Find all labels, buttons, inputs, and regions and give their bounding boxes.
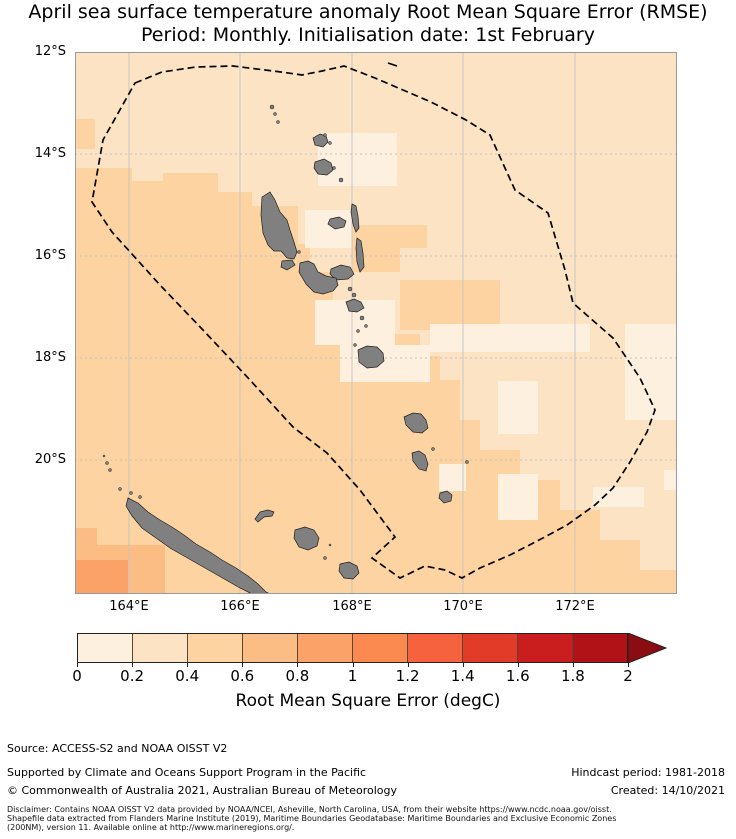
source-text: Source: ACCESS-S2 and NOAA OISST V2 [7,742,227,755]
colorbar-arrow-svg [628,633,668,663]
islet-dot [324,557,327,560]
colorbar-tick-label: 0.2 [120,667,144,685]
islet-dot [324,134,327,137]
islet-dot [139,496,142,499]
rmse-patch [593,487,644,507]
lat-tick-label: 20°S [0,452,66,468]
islet-dot [352,293,356,297]
colorbar [77,633,628,663]
colorbar-overflow-arrow [628,633,668,667]
rmse-patch [340,345,430,382]
colorbar-label: Root Mean Square Error (degC) [0,691,736,711]
rmse-patch [498,381,538,434]
rmse-patch [400,280,500,330]
rmse-patch [498,474,538,520]
colorbar-tick-label: 1.4 [451,667,475,685]
figure-title: April sea surface temperature anomaly Ro… [28,1,707,47]
colorbar-segment [463,634,518,662]
rmse-patch [664,470,677,490]
rmse-patch [75,119,95,149]
colorbar-segment [188,634,243,662]
lon-tick-label: 170°E [443,599,483,615]
lon-tick-label: 166°E [220,599,260,615]
lat-tick-label: 18°S [0,350,66,366]
islet-dot [432,448,435,451]
created-text: Created: 14/10/2021 [611,784,725,797]
colorbar-segment [573,634,627,662]
lon-tick-label: 164°E [109,599,149,615]
islet-dot [103,455,105,457]
islet-dot [329,142,332,145]
islet-dot [466,461,469,464]
islet-dot [333,167,336,170]
islet-dot [119,488,122,491]
colorbar-tick-label: 0.4 [175,667,199,685]
colorbar-tick-label: 1.8 [561,667,585,685]
colorbar-tick-label: 1.2 [396,667,420,685]
rmse-patch [352,225,427,248]
figure: April sea surface temperature anomaly Ro… [0,0,736,839]
islet-dot [354,344,357,347]
lon-tick-label: 168°E [332,599,372,615]
colorbar-tick-label: 1.6 [506,667,530,685]
islet-dot [360,316,364,320]
colorbar-tick-label: 2 [623,667,633,685]
copyright-text: © Commonwealth of Australia 2021, Austra… [7,784,397,797]
rmse-patch [430,324,590,352]
islet-dot [109,469,112,472]
colorbar-segment [243,634,298,662]
lon-tick-label: 172°E [555,599,595,615]
colorbar-segment [408,634,463,662]
islet-dot [298,251,301,254]
rmse-patch [75,560,128,594]
colorbar-tick-label: 0.8 [285,667,309,685]
lat-tick-label: 12°S [0,44,66,60]
islet-dot [274,113,277,116]
lat-tick-label: 16°S [0,248,66,264]
colorbar-arrow-shape [628,633,666,663]
colorbar-segment [133,634,188,662]
rmse-patch [305,210,352,248]
disclaimer-line2: Shapefile data extracted from Flanders M… [7,814,733,823]
islet-dot [130,492,133,495]
islet-dot [365,325,368,328]
hindcast-text: Hindcast period: 1981-2018 [571,766,725,779]
islet-dot [348,287,352,291]
colorbar-segment [518,634,573,662]
colorbar-segment [353,634,408,662]
supported-text: Supported by Climate and Oceans Support … [7,766,366,779]
colorbar-segment [78,634,133,662]
islet-dot [277,121,280,124]
rmse-patch [318,133,397,186]
map-canvas [75,52,677,594]
title-line1: April sea surface temperature anomaly Ro… [28,1,707,24]
map-svg [75,52,677,594]
colorbar-segment [298,634,353,662]
title-line2: Period: Monthly. Initialisation date: 1s… [28,24,707,47]
rmse-patch [439,464,466,491]
lat-tick-label: 14°S [0,146,66,162]
disclaimer-line1: Disclaimer: Contains NOAA OISST V2 data … [7,805,733,814]
colorbar-tick-label: 0.6 [230,667,254,685]
islet-dot [106,462,109,465]
islet-dot [270,105,274,109]
disclaimer-line3: (200NM), version 11. Available online at… [7,823,733,832]
islet-dot [339,178,343,182]
colorbar-tick-label: 1 [348,667,358,685]
islet-dot [329,544,331,546]
colorbar-tick-label: 0 [72,667,82,685]
rmse-patch [625,324,677,420]
islet-dot [357,330,360,333]
